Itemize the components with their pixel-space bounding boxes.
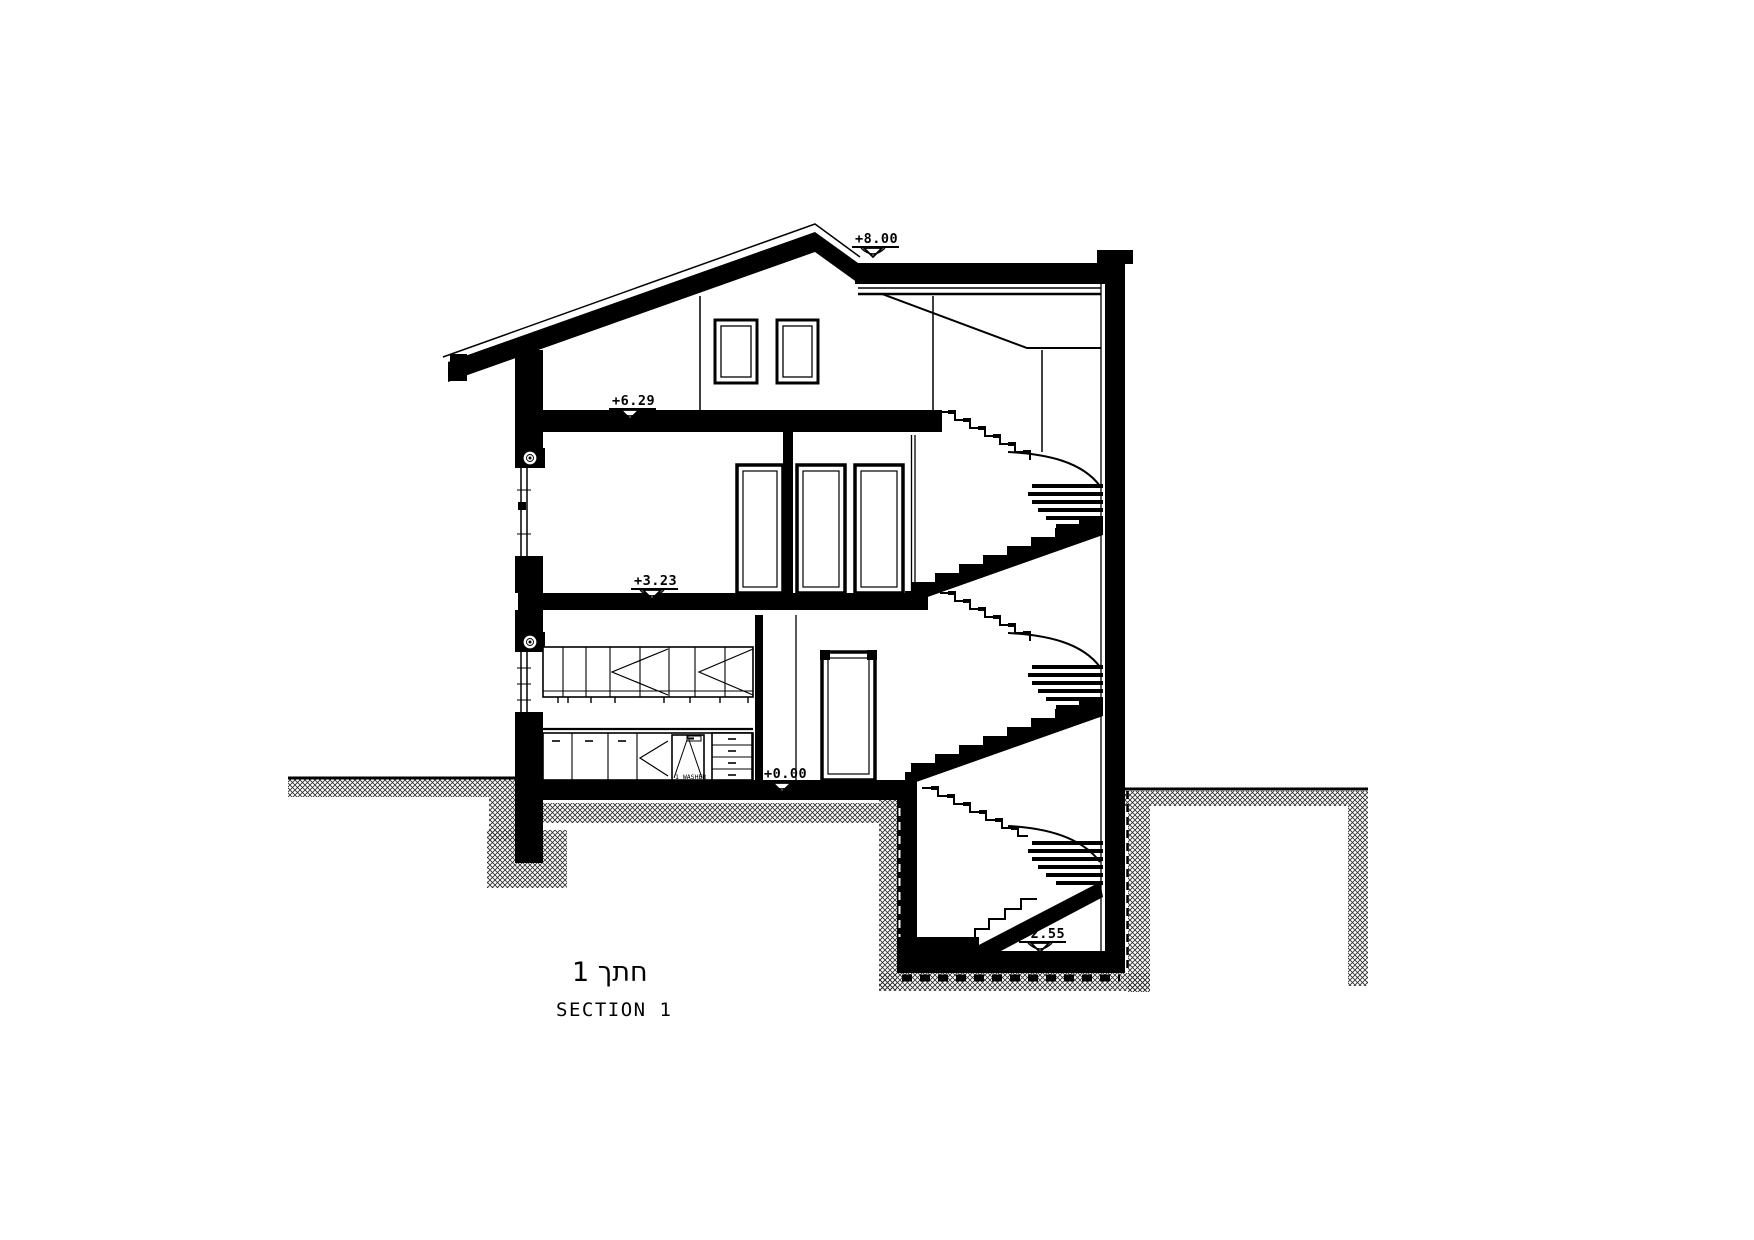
stair-flight-attic: [905, 410, 1103, 605]
stair-ceiling-slope: [882, 294, 1101, 348]
earth-column-pit-right: [1128, 806, 1150, 992]
level-marker-roof: +8.00: [852, 231, 899, 257]
door-1: [737, 465, 783, 593]
underslab-fill: [543, 803, 879, 823]
attic-window-2: [777, 320, 818, 383]
shutter-box-second-floor: [515, 448, 545, 468]
dishwasher: 1 WASHER: [672, 735, 706, 781]
door-frame: [797, 465, 845, 593]
second-floor: [737, 432, 915, 593]
title-block: 1 חתך SECTION 1: [556, 957, 672, 1021]
section-title-hebrew: 1 חתך: [572, 957, 648, 988]
door-frame: [855, 465, 903, 593]
door-2: [797, 465, 845, 593]
attic-floor-slab: [518, 410, 942, 432]
earth-hatching: [288, 778, 1368, 992]
attic-window-1: [715, 320, 757, 383]
second-floor-slab: [518, 593, 928, 610]
door-frame: [737, 465, 783, 593]
basement-floor-slab: [897, 951, 1125, 973]
stair-flight-basement: [922, 786, 1103, 961]
kitchen: 1 WASHER: [543, 647, 753, 781]
ground-floor-slab: [515, 780, 917, 800]
window-hardware: [518, 502, 526, 510]
winder-handrail-curve: [1008, 452, 1100, 486]
shutter-box-ground-floor: [515, 632, 545, 652]
level-value: +8.00: [855, 231, 898, 247]
stair-flight-second: [905, 591, 1103, 786]
roller-axle-icon: [529, 641, 532, 644]
left-wall-lintel: [515, 610, 543, 632]
cut-flight-band: [905, 519, 1103, 605]
earth-column-far-right: [1348, 806, 1368, 986]
level-value: -2.55: [1022, 926, 1065, 942]
upper-cabinets: [543, 647, 753, 697]
attic-slab-left-stub: [518, 410, 532, 442]
door-lintel-block-left: [820, 650, 830, 660]
appliance-label: 1 WASHER: [675, 773, 706, 781]
winder-handrail-curve: [1008, 633, 1100, 667]
flat-roof-slab: [855, 263, 1105, 284]
ground-floor: 1 WASHER: [543, 615, 877, 781]
basement-landing: [897, 937, 979, 951]
tread-nosings: [948, 591, 1031, 635]
door-frame: [822, 652, 875, 780]
door-3: [855, 465, 903, 593]
roller-axle-icon: [529, 457, 532, 460]
door-lintel-block-right: [867, 650, 877, 660]
walls: [515, 252, 1128, 973]
tread-nosings: [931, 786, 1019, 830]
roof-slope-band: [448, 232, 815, 382]
tread-nosings: [948, 410, 1031, 454]
kitchen-wall-cut: [755, 615, 763, 780]
level-value: +3.23: [634, 573, 677, 589]
earth-column-pit-left: [879, 800, 897, 990]
drawer-unit: [712, 733, 752, 780]
cut-flight-band: [905, 700, 1103, 786]
right-exterior-wall: [1105, 252, 1125, 973]
level-marker-basement: -2.55: [1019, 926, 1066, 952]
left-wall-second-segment: [515, 556, 543, 593]
staircase: [905, 410, 1103, 961]
grade-hatch-left: [288, 779, 517, 797]
winder-treads: [1028, 841, 1103, 885]
ground-floor-door: [820, 650, 877, 780]
level-value: +0.00: [764, 766, 807, 782]
eave-fascia: [450, 354, 467, 381]
upper-cabinet-handles: [558, 697, 748, 703]
drawing-sheet: 1 WASHER: [0, 0, 1754, 1240]
level-value: +6.29: [612, 393, 655, 409]
window-second-floor-section: [517, 468, 531, 556]
control-button: [689, 738, 694, 740]
window-ground-floor-section: [517, 652, 531, 712]
section-drawing: 1 WASHER: [0, 0, 1754, 1240]
section-title-english: SECTION 1: [556, 999, 672, 1021]
grade-hatch-right: [1125, 791, 1368, 806]
